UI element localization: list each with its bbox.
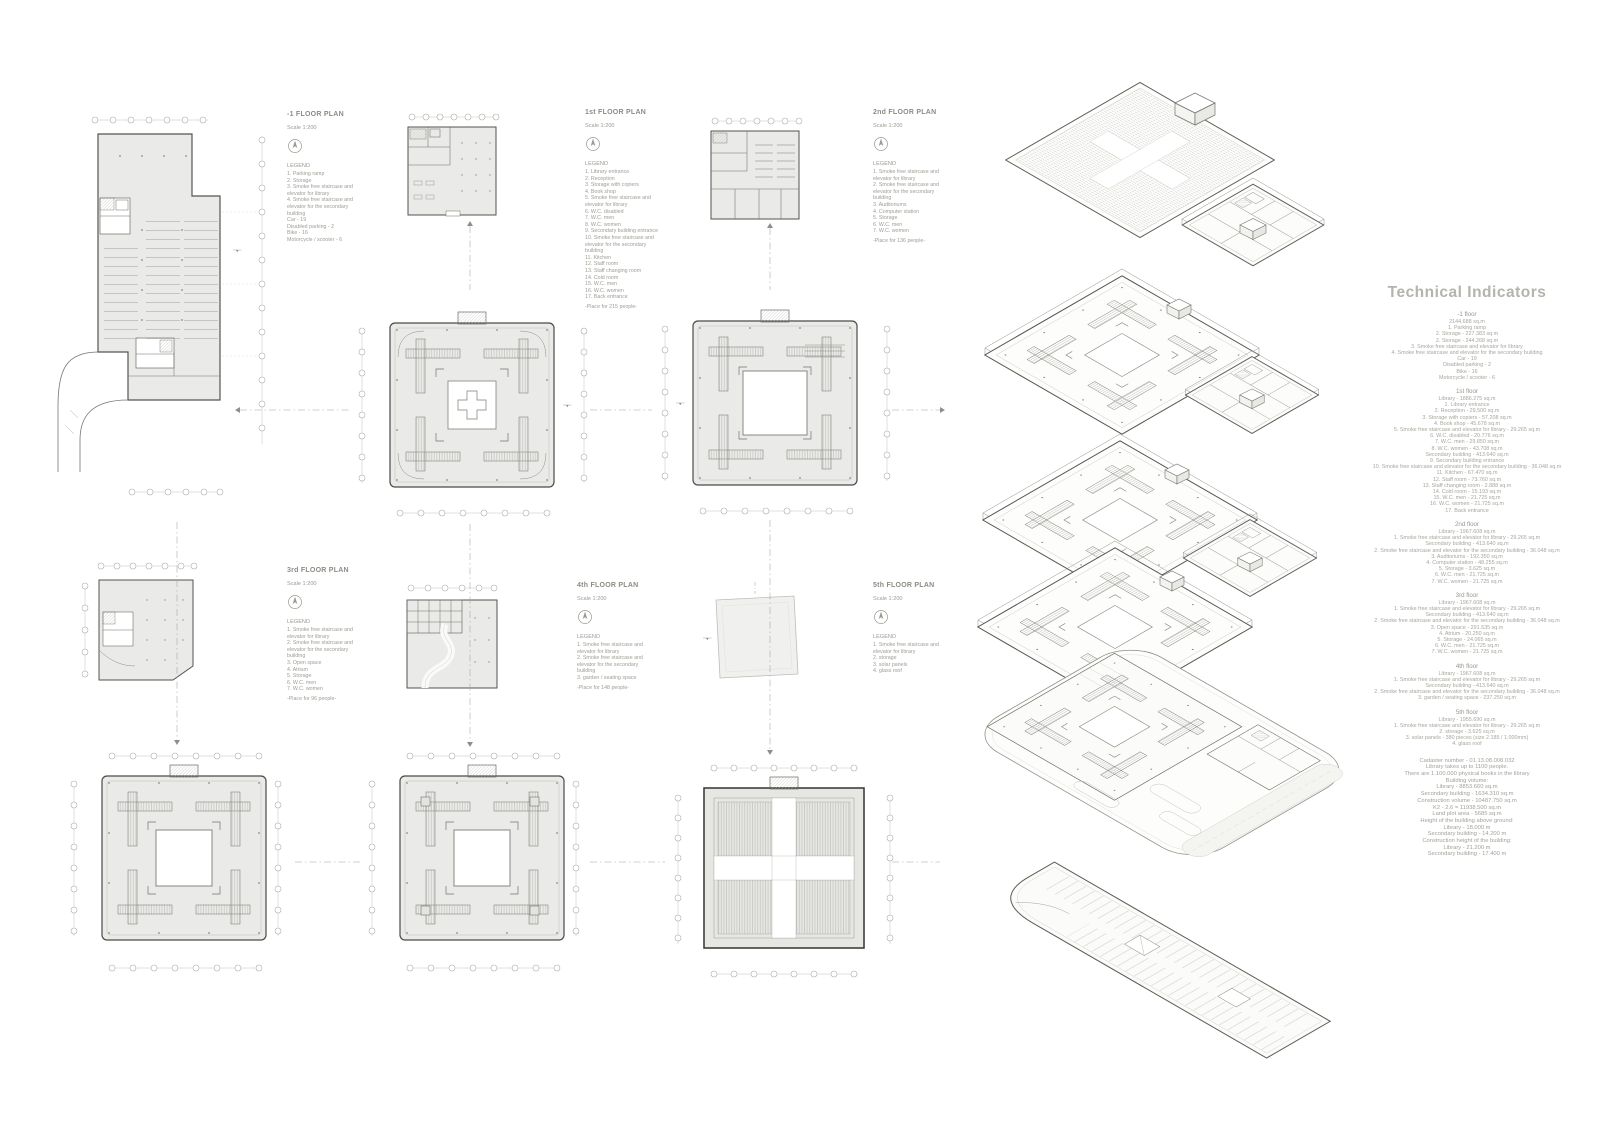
north-arrow-icon: [577, 609, 653, 625]
text-line: Height of the building above ground:: [1338, 818, 1596, 825]
text-line: 1. Parking ramp: [287, 171, 363, 178]
text-line: Library takes up to 1100 people.: [1338, 764, 1596, 771]
tech-section-lines: Library - 1886.275 sq.m1. Library entran…: [1338, 396, 1596, 514]
text-line: 4. Book shop: [585, 189, 661, 196]
text-line: 1. Smoke free staircase and elevator for…: [873, 642, 949, 655]
text-line: 3. garden / seating space: [577, 675, 653, 682]
tech-section-heading: 2nd floor: [1338, 521, 1596, 528]
text-line: 4. glass roof: [1338, 741, 1596, 747]
plan-fifth-large-drawing: [675, 765, 893, 977]
text-line: 3. Auditoriums: [873, 202, 949, 209]
title-block-second-floor: 2nd FLOOR PLAN Scale 1:200 LEGEND 1. Smo…: [873, 109, 949, 244]
north-arrow-icon: [873, 136, 949, 152]
text-line: Library - 8853.660 sq.m: [1338, 784, 1596, 791]
legend-note: -Place for 215 people-: [585, 304, 661, 310]
title-block-minus1-floor: -1 FLOOR PLAN Scale 1:200 LEGEND 1. Park…: [287, 111, 363, 247]
text-line: 4. glass roof: [873, 668, 949, 675]
text-line: K2 - 2.6 = 11938.500 sq.m: [1338, 805, 1596, 812]
plan-scale: Scale 1:200: [287, 125, 363, 131]
north-arrow-icon: [585, 136, 661, 152]
tech-section-lines: Library - 1967.608 sq.m1. Smoke free sta…: [1338, 600, 1596, 656]
tech-section-second: 2nd floor Library - 1967.608 sq.m1. Smok…: [1338, 521, 1596, 585]
plan-fourth-small-drawing: [407, 585, 497, 688]
tech-section-lines: 2144.688 sq.m1. Parking ramp2. Storage -…: [1338, 319, 1596, 381]
north-arrow-icon: [287, 138, 363, 154]
text-line: 5. Storage: [287, 673, 363, 680]
tech-section-lines: Library - 1967.608 sq.m1. Smoke free sta…: [1338, 671, 1596, 702]
title-block-first-floor: 1st FLOOR PLAN Scale 1:200 LEGEND 1. Lib…: [585, 109, 661, 310]
text-line: Construction height of the building:: [1338, 838, 1596, 845]
text-line: 15. W.C. men: [585, 281, 661, 288]
title-block-fourth-floor: 4th FLOOR PLAN Scale 1:200 LEGEND 1. Smo…: [577, 582, 653, 691]
text-line: 2. Smoke free staircase and elevator for…: [1338, 548, 1596, 554]
text-line: 7. W.C. women: [287, 686, 363, 693]
plan-title: 5th FLOOR PLAN: [873, 582, 949, 589]
tech-section-minus1: -1 floor 2144.688 sq.m1. Parking ramp2. …: [1338, 311, 1596, 381]
legend-list: 1. Smoke free staircase and elevator for…: [873, 169, 949, 235]
text-line: 17. Back entrance: [585, 294, 661, 301]
plan-scale: Scale 1:200: [577, 596, 653, 602]
text-line: 12. Staff room: [585, 261, 661, 268]
text-line: 7. W.C. women: [873, 228, 949, 235]
text-line: 9. Secondary building entrance: [585, 228, 661, 235]
plan-second-large-drawing: [662, 310, 890, 514]
plan-scale: Scale 1:200: [873, 123, 949, 129]
legend-label: LEGEND: [585, 161, 661, 167]
legend-note: -Place for 136 people-: [873, 238, 949, 244]
text-line: 14. Cold room: [585, 275, 661, 282]
axon-parking: [991, 862, 1330, 1058]
plan-scale: Scale 1:200: [873, 596, 949, 602]
text-line: Motorcycle / scooter - 6: [1338, 375, 1596, 381]
plan-scale: Scale 1:200: [287, 581, 363, 587]
plan-minus1-drawing: [58, 117, 265, 495]
tech-section-lines: Library - 1967.608 sq.m1. Smoke free sta…: [1338, 529, 1596, 585]
plan-title: -1 FLOOR PLAN: [287, 111, 363, 118]
text-line: 8. W.C. women: [585, 222, 661, 229]
plan-title: 4th FLOOR PLAN: [577, 582, 653, 589]
tech-section-heading: 4th floor: [1338, 663, 1596, 670]
tech-section-heading: 3rd floor: [1338, 592, 1596, 599]
plan-second-small-drawing: [711, 118, 802, 219]
plan-title: 2nd FLOOR PLAN: [873, 109, 949, 116]
plan-fourth-large-drawing: [369, 753, 579, 971]
text-line: 13. Staff changing room: [585, 268, 661, 275]
text-line: 2. Storage: [287, 178, 363, 185]
legend-label: LEGEND: [873, 161, 949, 167]
plan-third-large-drawing: [71, 753, 281, 971]
legend-list: 1. Parking ramp2. Storage3. Smoke free s…: [287, 171, 363, 244]
tech-section-lines: Library - 1955.690 sq.m1. Smoke free sta…: [1338, 717, 1596, 748]
text-line: 1. Smoke free staircase and elevator for…: [577, 642, 653, 655]
text-line: 10. Smoke free staircase and elevator fo…: [585, 235, 661, 255]
text-line: Secondary building - 1634.310 sq.m: [1338, 791, 1596, 798]
legend-label: LEGEND: [287, 619, 363, 625]
plan-first-large-drawing: [359, 312, 587, 516]
text-line: 2. Smoke free staircase and elevator for…: [1338, 618, 1596, 624]
plan-title: 1st FLOOR PLAN: [585, 109, 661, 116]
text-line: 11. Kitchen: [585, 255, 661, 262]
text-line: Secondary building - 17.400 m: [1338, 851, 1596, 858]
tech-summary: Cadaster number - 01.13.08.008.032Librar…: [1338, 758, 1596, 859]
text-line: 1. Library entrance: [585, 169, 661, 176]
legend-note: -Place for 96 people-: [287, 696, 363, 702]
text-line: 2. Reception: [585, 176, 661, 183]
text-line: 6. W.C. men: [287, 680, 363, 687]
technical-indicators-panel: Technical Indicators -1 floor 2144.688 s…: [1338, 284, 1596, 858]
text-line: Land plot area - 5685 sq.m: [1338, 811, 1596, 818]
text-line: 1. Smoke free staircase and elevator for…: [287, 627, 363, 640]
text-line: 6. W.C. men: [873, 222, 949, 229]
tech-section-heading: 1st floor: [1338, 388, 1596, 395]
text-line: 4. Atrium: [287, 667, 363, 674]
text-line: 5. Smoke free staircase and elevator for…: [585, 195, 661, 208]
text-line: 3. garden / seating space - 237.250 sq.m: [1338, 695, 1596, 701]
title-block-third-floor: 3rd FLOOR PLAN Scale 1:200 LEGEND 1. Smo…: [287, 567, 363, 702]
text-line: 7. W.C. women - 21.725 sq.m: [1338, 579, 1596, 585]
tech-section-heading: -1 floor: [1338, 311, 1596, 318]
text-line: Library - 21.200 m: [1338, 845, 1596, 852]
plan-title: 3rd FLOOR PLAN: [287, 567, 363, 574]
legend-list: 1. Library entrance2. Reception3. Storag…: [585, 169, 661, 301]
tech-section-first: 1st floor Library - 1886.275 sq.m1. Libr…: [1338, 388, 1596, 514]
text-line: 4. Smoke free staircase and elevator for…: [287, 197, 363, 217]
text-line: 3. solar panels: [873, 662, 949, 669]
legend-note: -Place for 148 people-: [577, 685, 653, 691]
plan-fifth-small-drawing: [703, 582, 798, 678]
text-line: 2. storage: [873, 655, 949, 662]
axonometric-stack: [967, 82, 1357, 1058]
plan-third-small-drawing: [82, 563, 197, 680]
text-line: Disabled parking - 2: [287, 224, 363, 231]
text-line: Car - 19: [287, 217, 363, 224]
text-line: 4. Computer station: [873, 209, 949, 216]
text-line: Bike - 16: [287, 230, 363, 237]
text-line: Construction volume - 10487.750 sq.m: [1338, 798, 1596, 805]
technical-indicators-title: Technical Indicators: [1338, 284, 1596, 302]
text-line: 6. W.C. disabled: [585, 209, 661, 216]
text-line: 2. Smoke free staircase and elevator for…: [287, 640, 363, 660]
text-line: Library - 18.000 m: [1338, 825, 1596, 832]
tech-section-heading: 5th floor: [1338, 709, 1596, 716]
text-line: 17. Back entrance: [1338, 508, 1596, 514]
legend-list: 1. Smoke free staircase and elevator for…: [577, 642, 653, 682]
text-line: 5. Storage: [873, 215, 949, 222]
presentation-board: { "plans": [ { "title": "-1 FLOOR PLAN",…: [0, 0, 1600, 1129]
tech-section-third: 3rd floor Library - 1967.608 sq.m1. Smok…: [1338, 592, 1596, 656]
legend-list: 1. Smoke free staircase and elevator for…: [287, 627, 363, 693]
legend-label: LEGEND: [873, 634, 949, 640]
text-line: 7. W.C. women - 21.725 sq.m: [1338, 649, 1596, 655]
legend-label: LEGEND: [287, 163, 363, 169]
text-line: 3. Smoke free staircase and elevator for…: [287, 184, 363, 197]
north-arrow-icon: [287, 594, 363, 610]
text-line: Secondary building - 14.200 m: [1338, 831, 1596, 838]
text-line: 16. W.C. women: [585, 288, 661, 295]
text-line: 2. Smoke free staircase and elevator for…: [577, 655, 653, 675]
text-line: 1. Smoke free staircase and elevator for…: [873, 169, 949, 182]
north-arrow-icon: [873, 609, 949, 625]
text-line: There are 1.100.000 physical books in th…: [1338, 771, 1596, 778]
plan-first-small-drawing: [408, 114, 499, 216]
title-block-fifth-floor: 5th FLOOR PLAN Scale 1:200 LEGEND 1. Smo…: [873, 582, 949, 678]
legend-label: LEGEND: [577, 634, 653, 640]
text-line: Motorcycle / scooter - 6: [287, 237, 363, 244]
tech-section-fourth: 4th floor Library - 1967.608 sq.m1. Smok…: [1338, 663, 1596, 702]
axon-site: [967, 640, 1357, 865]
tech-section-fifth: 5th floor Library - 1955.690 sq.m1. Smok…: [1338, 709, 1596, 748]
text-line: 3. Storage with copiers: [585, 182, 661, 189]
text-line: 7. W.C. men: [585, 215, 661, 222]
text-line: Building volume:: [1338, 778, 1596, 785]
legend-list: 1. Smoke free staircase and elevator for…: [873, 642, 949, 675]
text-line: 3. Open space: [287, 660, 363, 667]
plan-scale: Scale 1:200: [585, 123, 661, 129]
text-line: Cadaster number - 01.13.08.008.032: [1338, 758, 1596, 765]
text-line: 2. Smoke free staircase and elevator for…: [873, 182, 949, 202]
